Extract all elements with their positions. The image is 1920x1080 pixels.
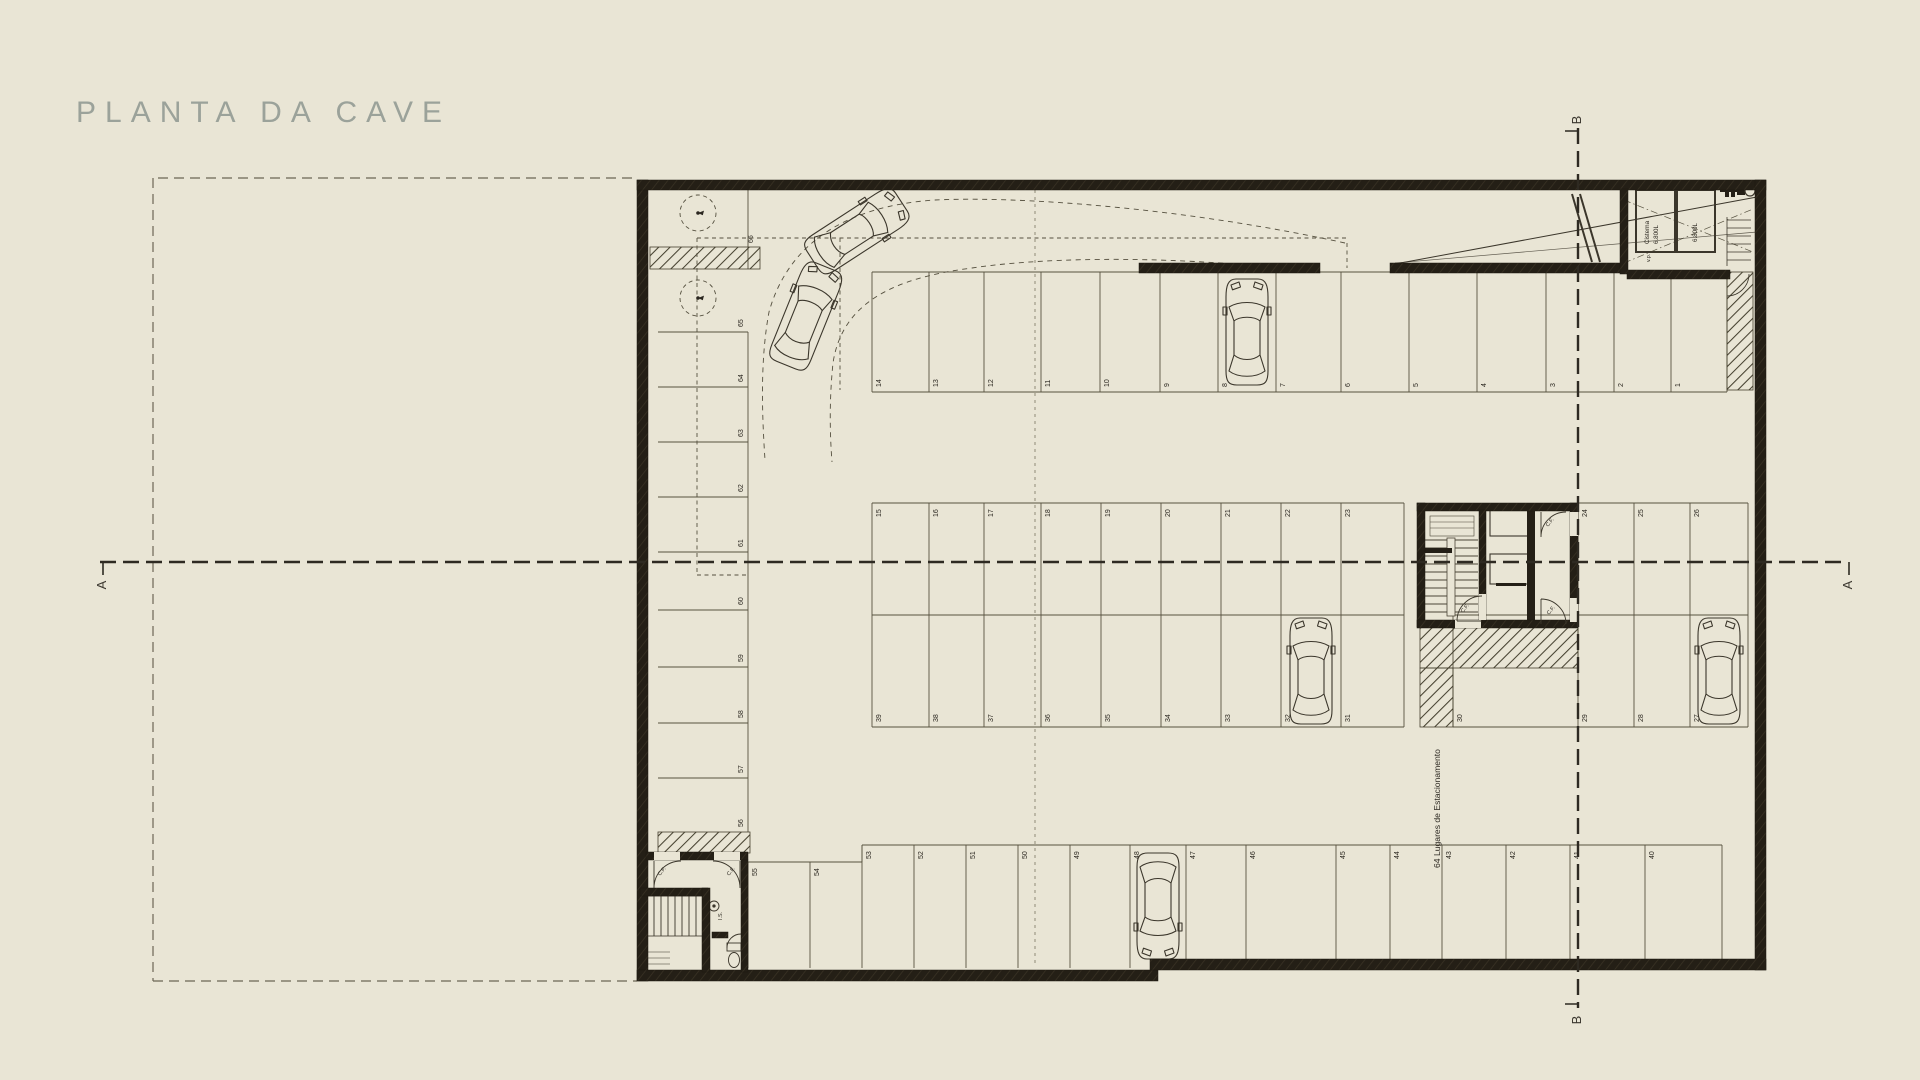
section-marker-b-top: B [1569,116,1584,125]
stall-number: 31 [1345,714,1352,722]
stall-number: 53 [866,851,873,859]
stall-number: 14 [876,379,883,387]
wall-top [637,180,1766,190]
fire-door-label-4: C.F. [657,866,668,877]
stall-number: 34 [1165,714,1172,722]
stall-number: 61 [738,539,745,547]
stall-number: 62 [738,484,745,492]
car-stall-32 [1287,618,1335,724]
stall-number: 9 [1164,383,1171,387]
stall-number: 26 [1694,509,1701,517]
stall-number: 66 [748,235,755,243]
stall-number: 65 [738,319,745,327]
elevator-car-1 [1490,510,1532,536]
stall-number: 64 [738,374,745,382]
stall-number: 59 [738,654,745,662]
section-marker-a-left: A [94,580,109,589]
section-marker-b-bottom: B [1569,1016,1584,1025]
wall-left [637,180,648,981]
core-wall-bottom [1417,620,1578,628]
stall-number: 17 [988,509,995,517]
cistern-name-label: Cisterna [1644,220,1651,244]
rooms-wall-vert [702,888,710,972]
stall-number: 13 [933,379,940,387]
stall-number: 36 [1045,714,1052,722]
property-boundary [153,178,637,981]
stall-number: 55 [752,868,759,876]
basement-floor-plan: PLANTA DA CAVE [0,0,1920,1080]
stall-number: 12 [988,379,995,387]
elevators [1490,503,1535,627]
stall-number: 49 [1074,851,1081,859]
hatched-right-strip [1727,272,1753,390]
cistern-stair-treads [1727,217,1751,266]
stall-number: 44 [1394,851,1401,859]
cistern-capacity-label-2: 6.800L [1692,223,1699,242]
stall-number: 56 [738,819,745,827]
fire-door-label-1: C.F. [1545,517,1556,528]
hatched-zones [650,247,1753,853]
core-wall-left [1417,503,1425,627]
hatched-strip-entry [650,247,760,269]
stall-number: 45 [1340,851,1347,859]
stall-number: 54 [814,868,821,876]
car-turning-1 [799,182,914,280]
wall-right [1755,180,1766,970]
vp-label: v.p. [1646,254,1652,262]
stall-number: 5 [1413,383,1420,387]
stall-number: 37 [988,714,995,722]
stall-number: 23 [1345,509,1352,517]
wall-bottom-left [637,970,1158,981]
stall-number: 47 [1190,851,1197,859]
parking-count-label: 64 Lugares de Estacionamento [1432,749,1442,868]
stall-number: 11 [1045,380,1052,387]
stall-number: 20 [1165,509,1172,517]
stair-wc-rooms [640,861,741,968]
elevator-car-2 [1490,554,1532,584]
stall-number: 46 [1250,851,1257,859]
ramp-break-marks [1572,194,1600,262]
stall-number: 43 [1446,851,1453,859]
stall-number: 58 [738,710,745,718]
stall-number: 30 [1457,714,1464,722]
layout-guides [680,190,1753,966]
wall-aisle-top [1139,263,1320,273]
rooms-wall-mid [640,888,708,896]
wall-cistern-bottom [1627,270,1730,279]
wall-cistern-left [1620,189,1628,274]
stair-core [1424,516,1478,616]
parking-stalls: 1413121110987654321151617181920212223242… [658,190,1748,968]
stall-number: 10 [1104,379,1111,387]
fire-door-label-3: C.F. [1460,603,1471,614]
cars [764,182,1743,959]
stall-number: 33 [1225,714,1232,722]
entry-ramp [1395,194,1757,264]
hatched-strip-left [658,832,750,853]
cistern-capacity-label: 6.800L [1653,225,1660,244]
stall-number: 21 [1225,509,1232,517]
stair-landing-wall [1424,548,1452,553]
stall-number: 57 [738,765,745,773]
fire-door-label-5: C.F. [726,866,737,877]
section-line-a [100,562,1849,575]
hatched-below-core-2 [1420,668,1453,727]
elevator-shaft-wall [1527,503,1535,627]
rooms-wall-wc-right [741,860,748,972]
toilet [727,943,741,968]
hatched-below-core [1420,627,1578,668]
stall-number: 40 [1649,851,1656,859]
stall-number: 1 [1675,383,1682,387]
stall-number: 50 [1022,851,1029,859]
door-arc-wc [727,934,741,948]
wc-label: I.S. [718,912,724,920]
stall-number: 24 [1582,509,1589,517]
stall-number: 52 [918,851,925,859]
stall-number: 63 [738,429,745,437]
stall-number: 4 [1481,383,1488,387]
turning-guides [762,199,1345,462]
stall-number: 16 [933,509,940,517]
core-wall-top [1417,503,1578,511]
stall-number: 2 [1618,383,1625,387]
stall-number: 60 [738,597,745,605]
stall-number: 19 [1105,509,1112,517]
rooms-wall-wc-seg [712,932,728,938]
stall-number: 15 [876,509,883,517]
walls [637,180,1766,981]
car-stall-48 [1134,853,1182,959]
stall-number: 6 [1345,383,1352,387]
stall-number: 51 [970,851,977,859]
stall-number: 42 [1510,851,1517,859]
wall-bottom-right [1150,959,1766,970]
stall-number: 28 [1638,714,1645,722]
stall-number: 35 [1105,714,1112,722]
section-marker-a-right: A [1840,580,1855,589]
car-stall-27 [1695,618,1743,724]
stall-number: 29 [1582,714,1589,722]
car-turning-2 [764,258,848,374]
stall-number: 38 [933,714,940,722]
stall-number: 25 [1638,509,1645,517]
stall-number: 7 [1280,383,1287,387]
stall-number: 18 [1045,509,1052,517]
car-stall-8 [1223,279,1271,385]
wall-ramp-bottom [1390,263,1623,273]
floor-plan-canvas: 1413121110987654321151617181920212223242… [0,0,1920,1080]
stall-number: 39 [876,714,883,722]
stall-number: 3 [1550,383,1557,387]
stall-number: 22 [1285,509,1292,517]
stall-number: 8 [1222,383,1229,387]
